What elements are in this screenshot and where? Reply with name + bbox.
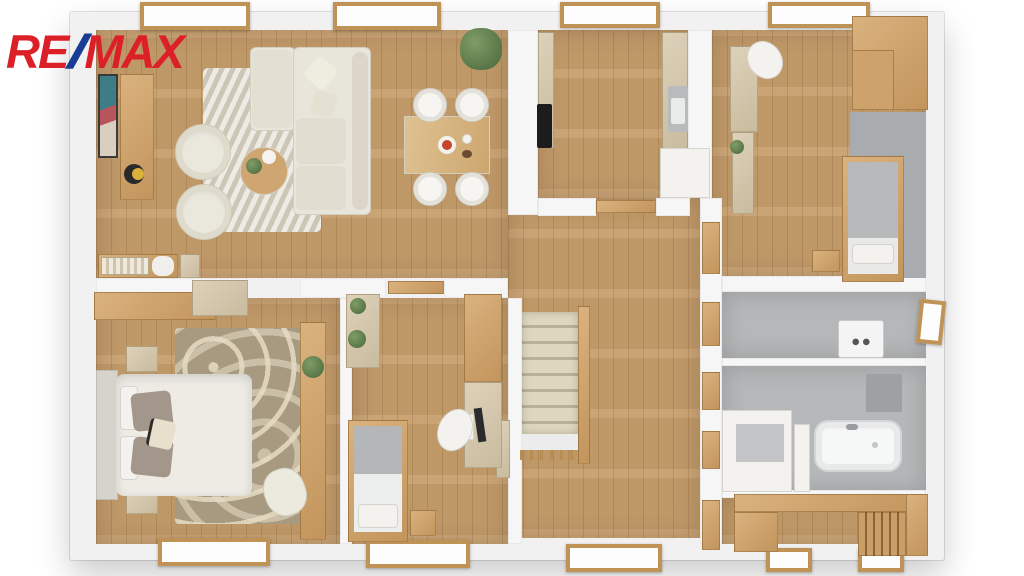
door-kitchen xyxy=(596,200,656,213)
wall-utility-bath xyxy=(722,358,926,366)
kids-nightstand xyxy=(410,510,436,536)
logo-re: RE xyxy=(6,25,67,78)
door-closet-room xyxy=(702,500,720,550)
bedroom1-tall-wardrobe xyxy=(300,322,326,540)
dining-chair-2 xyxy=(455,88,489,122)
kitchen-sink-basin xyxy=(671,98,685,124)
closet-shelving xyxy=(858,512,906,556)
cookies xyxy=(462,150,472,158)
wall-living-kitchen xyxy=(508,30,538,215)
bedroom1-headboard xyxy=(96,370,118,500)
staircase-landing xyxy=(522,434,578,450)
door-bathroom xyxy=(702,372,720,410)
staircase-steps xyxy=(522,312,578,434)
bedroom2-mattress xyxy=(848,162,898,238)
bench-books xyxy=(101,257,149,275)
water-heater xyxy=(838,320,884,358)
bathtub xyxy=(814,420,902,472)
floorplan-render: RE/MAX xyxy=(0,0,1024,576)
dining-chair-3 xyxy=(413,172,447,206)
logo-max: MAX xyxy=(84,25,182,78)
sofa-chaise-cushion xyxy=(252,50,292,128)
sofa-cushion-b xyxy=(296,166,346,210)
sofa-cushion-a xyxy=(296,118,346,164)
utility-room-floor xyxy=(722,292,926,358)
closet-cabinet-right xyxy=(906,494,928,556)
door-bedroom2 xyxy=(702,222,720,274)
bench-sculpture xyxy=(152,256,174,276)
bathroom-cabinet xyxy=(866,374,902,412)
bathtub-faucet xyxy=(846,424,858,430)
door-kids-room-top xyxy=(388,281,444,294)
door-hall-storage xyxy=(702,431,720,469)
kids-pillow xyxy=(358,504,398,528)
bath-partition xyxy=(794,424,810,492)
window-kitchen xyxy=(560,2,660,28)
bedroom1-plant xyxy=(302,356,324,378)
closet-cabinets-top xyxy=(734,494,928,512)
logo-slash-icon: / xyxy=(68,28,84,75)
staircase-railing xyxy=(578,306,590,464)
window-hallway xyxy=(566,544,662,572)
wall-kidsroom-right xyxy=(508,298,522,544)
closet-cabinet-left xyxy=(734,512,778,552)
kids-plant-a xyxy=(350,298,366,314)
shower-recess xyxy=(736,424,784,462)
wall-art xyxy=(98,74,118,158)
remax-logo: RE/MAX xyxy=(6,28,183,75)
sofa-backrest xyxy=(352,52,368,210)
dining-chair-4 xyxy=(455,172,489,206)
wall-kitchen-bottom-a xyxy=(538,198,596,216)
bedroom2-pillow xyxy=(852,244,894,264)
bench-shelf xyxy=(180,254,200,278)
corner-plant xyxy=(460,28,502,70)
armchair-b xyxy=(176,184,232,240)
armchair-a xyxy=(175,124,231,180)
window-utility-open xyxy=(916,299,946,345)
window-bedroom1 xyxy=(158,538,270,566)
kids-mattress xyxy=(354,426,402,474)
bedroom1-cabinet-pale xyxy=(192,280,248,316)
staircase-balusters xyxy=(520,450,580,460)
bathtub-drain xyxy=(872,442,878,448)
bedroom2-nightstand xyxy=(812,250,840,272)
kids-wardrobe xyxy=(464,294,502,382)
window-kids-room xyxy=(366,540,470,568)
window-living-2 xyxy=(333,2,441,30)
fruit xyxy=(442,140,452,150)
dining-chair-1 xyxy=(413,88,447,122)
bedroom2-plant xyxy=(730,140,744,154)
coffee-table-plant xyxy=(246,158,262,174)
sunflower-bloom xyxy=(132,168,144,180)
wall-kitchen-bottom-b xyxy=(656,198,690,216)
door-utility xyxy=(702,302,720,346)
kids-plant-b xyxy=(348,330,366,348)
cooktop xyxy=(537,104,552,148)
kitchen-peninsula xyxy=(660,148,710,198)
teapot xyxy=(462,134,472,144)
coffee-table-tray xyxy=(262,150,276,164)
bedroom2-drawers xyxy=(852,50,894,110)
nightstand-top xyxy=(126,346,158,372)
